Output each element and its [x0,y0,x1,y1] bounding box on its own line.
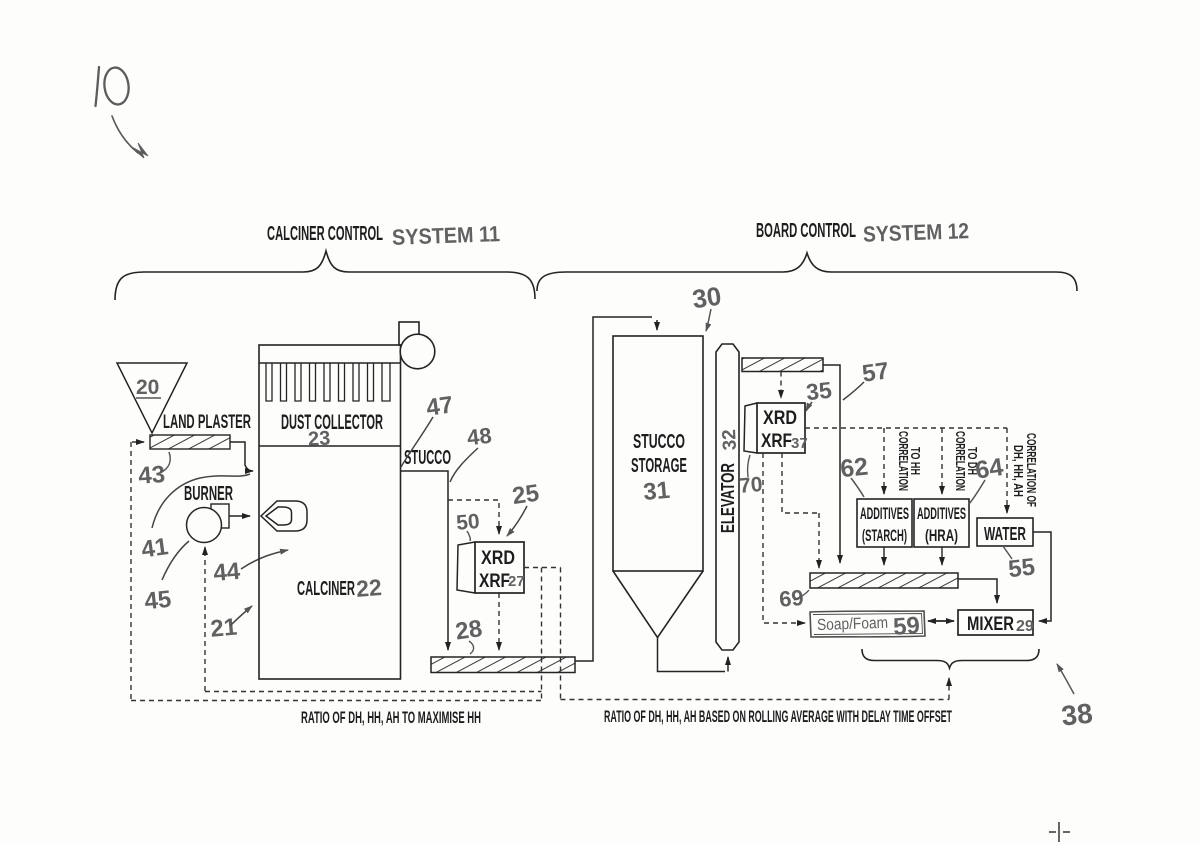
svg-text:RATIO OF DH, HH, AH BASED ON R: RATIO OF DH, HH, AH BASED ON ROLLING AVE… [604,707,952,726]
svg-text:25: 25 [511,480,541,510]
svg-text:ADDITIVES: ADDITIVES [917,504,966,523]
svg-text:22: 22 [355,574,382,602]
svg-text:LAND PLASTER: LAND PLASTER [163,412,251,433]
svg-text:SYSTEM 12: SYSTEM 12 [863,218,970,247]
svg-text:59: 59 [892,612,921,641]
svg-text:41: 41 [140,533,170,563]
svg-text:STORAGE: STORAGE [631,455,687,477]
svg-text:43: 43 [137,461,166,490]
svg-text:ADDITIVES: ADDITIVES [860,504,909,523]
svg-text:(STARCH): (STARCH) [862,526,907,545]
svg-text:ELEVATOR: ELEVATOR [718,463,738,533]
svg-text:64: 64 [974,453,1006,485]
svg-text:23: 23 [308,427,331,450]
svg-text:BOARD CONTROL: BOARD CONTROL [756,220,856,242]
svg-text:50: 50 [455,510,480,535]
svg-text:30: 30 [690,281,723,315]
svg-text:TO HH: TO HH [908,447,923,475]
svg-text:70: 70 [738,473,763,498]
svg-text:WATER: WATER [984,524,1026,544]
svg-text:CALCINER CONTROL: CALCINER CONTROL [267,223,383,245]
svg-text:MIXER: MIXER [967,614,1014,635]
svg-text:XRF: XRF [761,431,792,452]
svg-text:35: 35 [805,377,833,406]
svg-text:57: 57 [860,357,890,387]
svg-text:47: 47 [425,391,455,421]
svg-text:27: 27 [508,573,525,590]
svg-text:38: 38 [1060,697,1094,731]
svg-text:20: 20 [136,376,159,399]
svg-text:XRD: XRD [481,548,515,569]
svg-text:32: 32 [719,429,741,451]
svg-text:69: 69 [778,585,805,612]
svg-text:21: 21 [209,614,238,643]
svg-text:37: 37 [791,435,808,452]
svg-text:STUCCO: STUCCO [633,431,685,453]
svg-text:SYSTEM 11: SYSTEM 11 [392,221,501,250]
svg-text:RATIO OF DH, HH, AH TO MAXIMIS: RATIO OF DH, HH, AH TO MAXIMISE HH [301,708,481,727]
svg-text:45: 45 [143,586,172,616]
svg-text:28: 28 [454,615,484,645]
svg-text:(HRA): (HRA) [925,526,958,545]
svg-text:31: 31 [642,477,671,506]
svg-text:BURNER: BURNER [184,483,233,505]
svg-text:29: 29 [1016,618,1034,635]
svg-text:CALCINER: CALCINER [297,578,355,600]
svg-text:62: 62 [839,453,870,484]
svg-text:XRD: XRD [763,408,797,429]
svg-text:DUST COLLECTOR: DUST COLLECTOR [281,411,383,434]
svg-text:44: 44 [212,558,242,587]
svg-text:DH, HH, AH: DH, HH, AH [1011,445,1026,497]
svg-text:48: 48 [466,423,493,450]
svg-text:Soap/Foam: Soap/Foam [817,615,889,634]
svg-text:XRF: XRF [479,571,510,592]
